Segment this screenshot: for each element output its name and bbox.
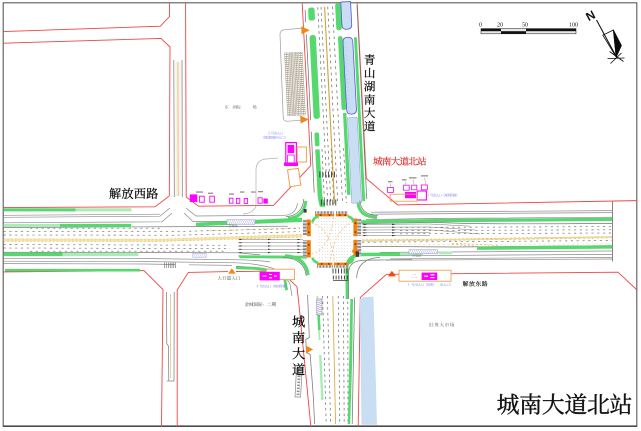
svg-text:0: 0: [479, 23, 482, 29]
svg-text:20: 20: [497, 23, 503, 29]
svg-text:100: 100: [569, 23, 578, 29]
svg-text:50: 50: [522, 23, 528, 29]
